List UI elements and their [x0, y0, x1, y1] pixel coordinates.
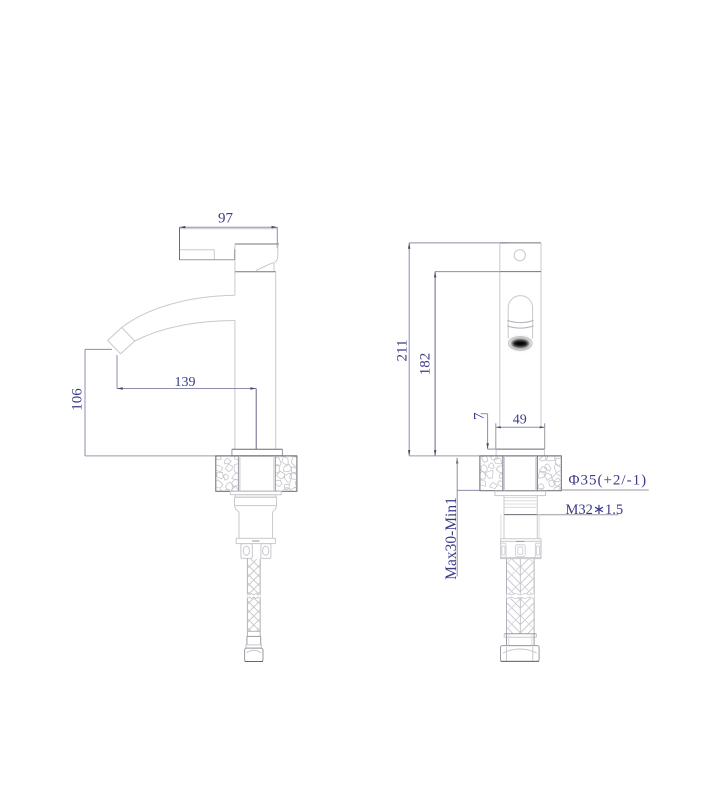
svg-text:139: 139 — [175, 375, 196, 390]
svg-text:Max30-Min1: Max30-Min1 — [443, 497, 460, 580]
svg-text:211: 211 — [395, 340, 411, 362]
svg-text:182: 182 — [418, 353, 434, 376]
svg-text:7: 7 — [472, 412, 488, 420]
svg-text:Φ35(+2/-1): Φ35(+2/-1) — [569, 473, 648, 489]
svg-text:49: 49 — [513, 413, 527, 428]
svg-text:97: 97 — [218, 211, 234, 227]
svg-text:106: 106 — [70, 388, 86, 411]
svg-text:M32∗1.5: M32∗1.5 — [566, 502, 624, 518]
